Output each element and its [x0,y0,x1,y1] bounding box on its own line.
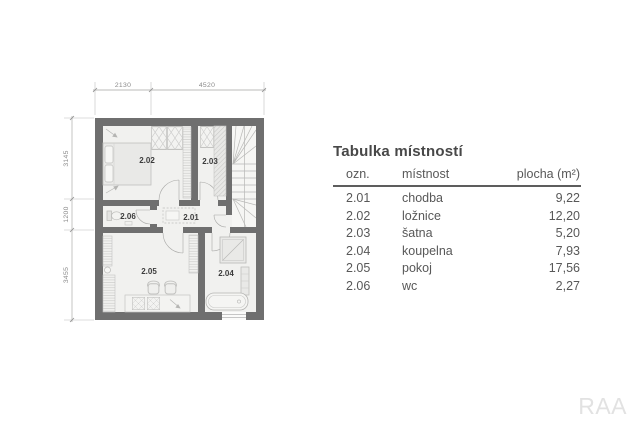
stair-floor [232,126,256,227]
wardrobe [167,127,182,150]
armchair [147,297,159,309]
cell-plocha: 17,56 [510,260,581,278]
dim-top-2: 4520 [199,82,215,89]
cell-mistnost: šatna [402,225,510,243]
wardrobe [151,127,166,150]
table-row: 2.03 šatna 5,20 [333,225,581,243]
table-row: 2.05 pokoj 17,56 [333,260,581,278]
room-label-2-05: 2.05 [141,267,157,276]
rooms-table: ozn. místnost plocha (m²) 2.01 chodba 9,… [333,167,581,295]
pillow [105,146,113,163]
cell-plocha: 5,20 [510,225,581,243]
hatch [166,211,179,220]
col-header-mistnost: místnost [402,167,510,186]
room-table-section: Tabulka místností ozn. místnost plocha (… [333,143,580,295]
room-label-2-03: 2.03 [202,157,218,166]
table-header-row: ozn. místnost plocha (m²) [333,167,581,186]
cell-ozn: 2.04 [333,242,402,260]
cell-ozn: 2.01 [333,186,402,207]
room-label-2-04: 2.04 [218,269,234,278]
cell-mistnost: wc [402,277,510,295]
watermark-logo: RAA [578,393,627,420]
window [222,312,246,320]
cell-mistnost: ložnice [402,207,510,225]
page: { "plan": { "rooms": [ {"id": "2.01"}, {… [0,0,640,427]
dim-left-3: 3455 [63,267,70,283]
table-title: Tabulka místností [333,143,580,160]
cell-ozn: 2.02 [333,207,402,225]
cell-mistnost: pokoj [402,260,510,278]
dim-top-1: 2130 [115,82,131,89]
pillow [105,165,113,182]
cell-mistnost: koupelna [402,242,510,260]
cell-plocha: 9,22 [510,186,581,207]
room-label-2-01: 2.01 [183,213,199,222]
table-row: 2.02 ložnice 12,20 [333,207,581,225]
dimension-left: 3145 1200 3455 [63,116,94,322]
shelf [189,235,198,273]
room-label-2-06: 2.06 [120,212,136,221]
room-label-2-02: 2.02 [139,156,155,165]
dim-left-1: 3145 [63,150,70,166]
col-header-ozn: ozn. [333,167,402,186]
dim-left-2: 1200 [63,206,70,222]
shelf [183,127,191,198]
cell-plocha: 12,20 [510,207,581,225]
cell-ozn: 2.03 [333,225,402,243]
table-row: 2.01 chodba 9,22 [333,186,581,207]
cell-ozn: 2.05 [333,260,402,278]
cell-plocha: 7,93 [510,242,581,260]
basin [105,267,111,273]
cell-plocha: 2,27 [510,277,581,295]
armchair [132,297,144,309]
cabinet [103,275,115,312]
floor-plan: 2.01 2.02 2.03 2.04 2.05 2.06 2130 4520 … [50,68,290,338]
toilet-tank [107,211,112,221]
table-row: 2.06 wc 2,27 [333,277,581,295]
cell-ozn: 2.06 [333,277,402,295]
cell-mistnost: chodba [402,186,510,207]
col-header-plocha: plocha (m²) [510,167,581,186]
table-row: 2.04 koupelna 7,93 [333,242,581,260]
dimension-top: 2130 4520 [93,82,266,115]
wardrobe [200,127,213,148]
shelf [103,236,112,266]
